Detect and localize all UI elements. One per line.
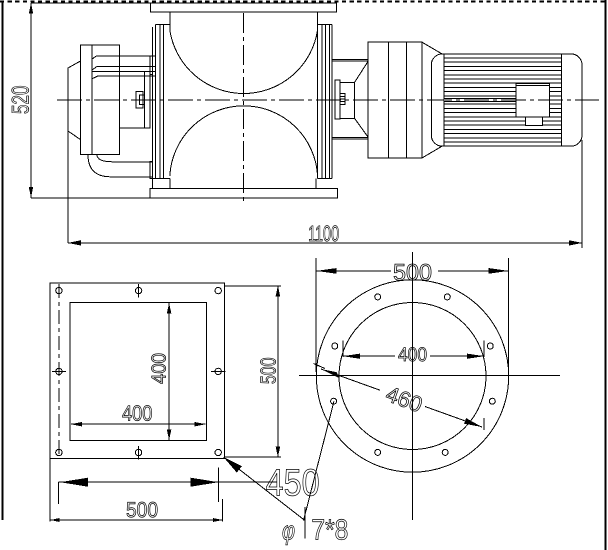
svg-text:450: 450: [266, 463, 320, 505]
svg-text:7*8: 7*8: [311, 515, 348, 547]
svg-text:500: 500: [126, 498, 158, 522]
svg-text:400: 400: [398, 344, 427, 366]
svg-text:400: 400: [122, 402, 153, 426]
svg-text:500: 500: [257, 357, 281, 384]
svg-text:φ: φ: [282, 516, 295, 546]
svg-text:500: 500: [393, 259, 432, 285]
svg-text:520: 520: [8, 85, 35, 114]
svg-text:460: 460: [383, 381, 426, 417]
svg-text:1100: 1100: [308, 221, 339, 246]
svg-text:400: 400: [148, 353, 170, 384]
